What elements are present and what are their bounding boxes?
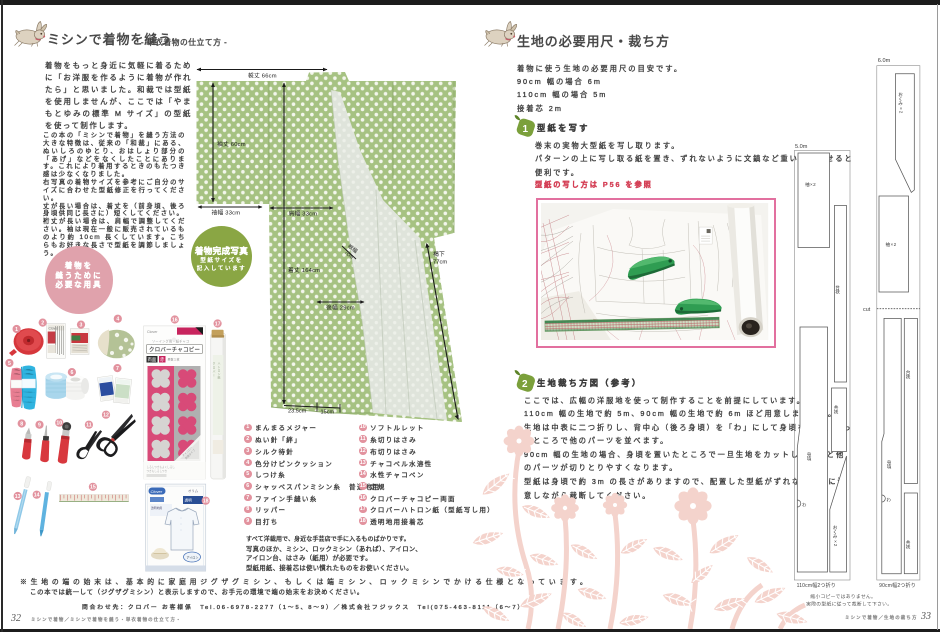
svg-text:身頃: 身頃 (886, 459, 892, 471)
svg-text:12: 12 (103, 413, 109, 419)
svg-text:わ: わ (887, 497, 892, 503)
svg-text:5.0m: 5.0m (795, 144, 808, 150)
svg-text:褐下: 褐下 (433, 250, 445, 258)
svg-text:16: 16 (172, 317, 178, 323)
svg-text:7: 7 (116, 366, 119, 372)
svg-text:身頃: 身頃 (806, 451, 812, 463)
svg-text:袖幅 33cm: 袖幅 33cm (212, 209, 241, 217)
svg-text:台衭: 台衭 (835, 284, 841, 296)
svg-text:男数１枚: 男数１枚 (168, 357, 180, 362)
svg-text:13: 13 (15, 494, 21, 500)
svg-text:後幅 29cm: 後幅 29cm (326, 304, 355, 312)
svg-text:Clover: Clover (147, 330, 158, 334)
svg-text:袖×2: 袖×2 (805, 181, 816, 188)
svg-text:ソーイング用・紙チャコ: ソーイング用・紙チャコ (152, 339, 189, 344)
svg-text:4: 4 (116, 317, 119, 323)
svg-text:袖丈 60cm: 袖丈 60cm (217, 140, 246, 148)
svg-text:14: 14 (34, 493, 40, 499)
svg-text:共衭: 共衭 (905, 539, 911, 551)
svg-text:18: 18 (203, 499, 209, 505)
svg-text:cut: cut (863, 307, 871, 313)
svg-text:2: 2 (522, 379, 528, 390)
svg-text:裚丈 66cm: 裚丈 66cm (248, 72, 277, 80)
svg-text:クロバーチャコピー: クロバーチャコピー (149, 346, 200, 354)
svg-text:実際の型紙に従って裁断して下さい。: 実際の型紙に従って裁断して下さい。 (806, 601, 892, 608)
svg-text:つきもしるしつき: つきもしるしつき (147, 469, 168, 473)
svg-text:10: 10 (56, 421, 62, 427)
svg-text:おくみ×2: おくみ×2 (898, 92, 904, 114)
svg-text:ハトロン紙: ハトロン紙 (217, 362, 221, 380)
svg-text:17: 17 (215, 321, 221, 327)
svg-text:袖×2: 袖×2 (886, 241, 897, 248)
svg-text:110cm幅2つ折り: 110cm幅2つ折り (797, 582, 836, 589)
svg-text:23.5cm: 23.5cm (288, 409, 307, 415)
svg-text:肩幅 33cm: 肩幅 33cm (289, 210, 318, 218)
svg-text:しるしつきもよくしるし: しるしつきもよくしるし (147, 465, 176, 469)
svg-text:縮小コピーではありません。: 縮小コピーではありません。 (810, 593, 876, 600)
svg-text:6.0m: 6.0m (878, 58, 891, 64)
svg-text:11: 11 (86, 423, 92, 429)
svg-text:共衭: 共衭 (833, 404, 839, 416)
svg-text:15: 15 (90, 485, 96, 491)
svg-text:1: 1 (523, 124, 529, 135)
svg-text:15cm: 15cm (321, 410, 335, 416)
svg-text:3: 3 (80, 323, 83, 329)
svg-text:1: 1 (15, 327, 18, 333)
svg-text:2: 2 (41, 321, 44, 327)
svg-text:5: 5 (8, 361, 11, 367)
svg-text:Clover: Clover (151, 489, 163, 494)
svg-text:6: 6 (70, 370, 73, 376)
svg-text:着丈 164cm: 着丈 164cm (288, 266, 320, 274)
svg-text:90cm幅2つ折り: 90cm幅2つ折り (879, 582, 916, 589)
svg-text:9: 9 (38, 423, 41, 429)
svg-text:赤: 赤 (160, 357, 165, 362)
svg-text:8: 8 (20, 421, 23, 427)
svg-text:透明: 透明 (185, 498, 193, 503)
svg-text:アイロン: アイロン (187, 555, 199, 560)
svg-text:わ: わ (802, 502, 807, 508)
svg-text:おくみ×2: おくみ×2 (832, 525, 838, 547)
svg-text:クロバー: クロバー (212, 361, 216, 378)
svg-text:77cm: 77cm (433, 260, 447, 266)
svg-text:台衭: 台衭 (905, 369, 911, 381)
svg-text:オリム: オリム (188, 488, 199, 493)
svg-text:透明地用: 透明地用 (151, 506, 162, 510)
